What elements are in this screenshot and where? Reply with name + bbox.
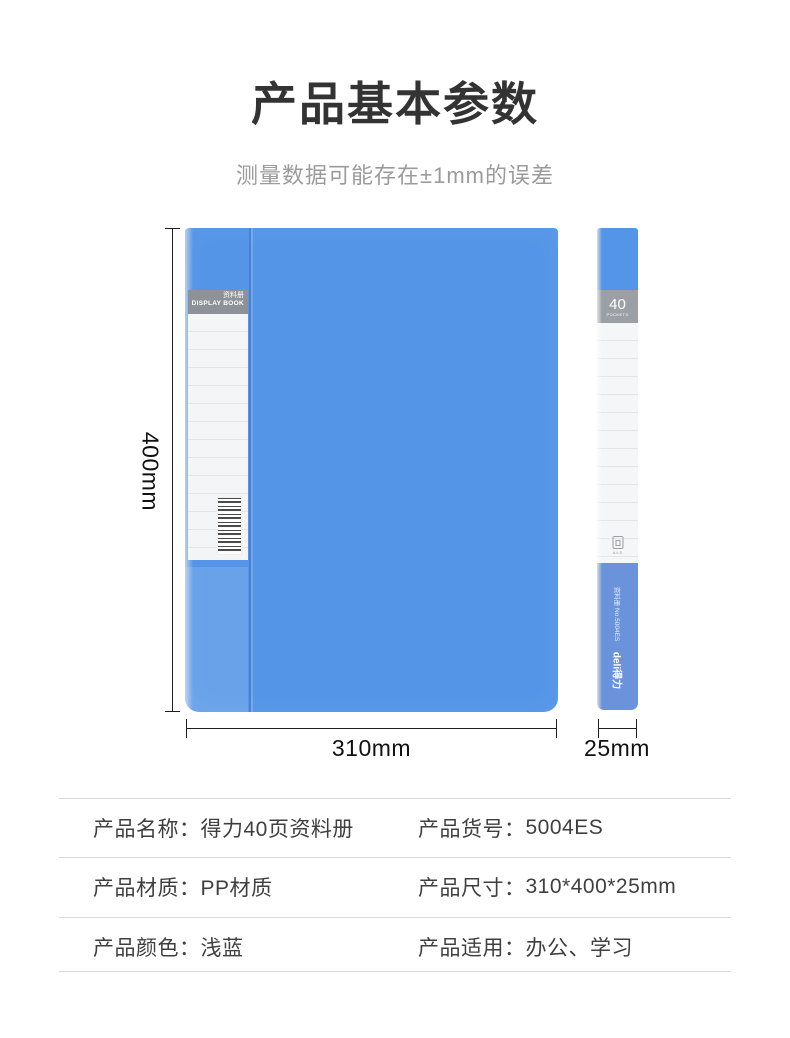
front-spine-label-band: 资料册 DISPLAY BOOK [188, 290, 248, 314]
spec-label: 产品适用： [418, 932, 526, 962]
height-dimension-tick-top [165, 228, 180, 229]
spec-label: 产品尺寸： [418, 872, 526, 902]
a4-size-icon-frame [612, 536, 623, 549]
spec-value: PP材质 [201, 872, 273, 902]
spec-product-number: 产品货号：5004ES [418, 799, 603, 857]
side-bottom-section: 资料册 No.5004ES deli得力 [597, 563, 638, 710]
spec-label: 产品颜色： [93, 932, 201, 962]
spec-label: 产品货号： [418, 813, 526, 843]
table-row: 产品颜色：浅蓝 产品适用：办公、学习 [0, 918, 790, 976]
width-dimension-line [186, 728, 557, 729]
a4-size-icon-label: A4-S [613, 550, 623, 555]
page-subtitle: 测量数据可能存在±1mm的误差 [0, 158, 790, 190]
side-model-text: 资料册 No.5004ES [613, 574, 623, 654]
spine-label-cn: 资料册 [190, 292, 244, 300]
spec-value: 办公、学习 [526, 932, 634, 962]
side-ruled-section: A4-S [597, 323, 638, 563]
spine-label-en: DISPLAY BOOK [190, 300, 244, 307]
product-side-view: 40 POCKETS A4-S 资料册 No.5004ES deli得力 [597, 228, 638, 710]
page-title: 产品基本参数 [0, 68, 790, 134]
depth-dimension-label: 25mm [567, 735, 667, 762]
spec-label: 产品材质： [93, 872, 201, 902]
spec-product-material: 产品材质：PP材质 [93, 858, 273, 916]
front-spine-label: 资料册 DISPLAY BOOK [188, 290, 248, 560]
front-spine-bottom-highlight [185, 567, 248, 712]
front-spine-crease-highlight [251, 228, 253, 712]
pocket-label: POCKETS [607, 313, 629, 317]
deli-brand-logo: deli得力 [610, 646, 625, 696]
width-dimension-label: 310mm [186, 735, 557, 762]
table-row: 产品材质：PP材质 产品尺寸：310*400*25mm [0, 858, 790, 916]
height-dimension-line [172, 228, 173, 712]
spec-label: 产品名称： [93, 813, 201, 843]
spec-product-name: 产品名称：得力40页资料册 [93, 799, 354, 857]
a4-size-icon: A4-S [612, 536, 623, 555]
spec-product-size: 产品尺寸：310*400*25mm [418, 858, 676, 916]
side-top-section [597, 228, 638, 290]
height-dimension-label: 400mm [137, 432, 164, 512]
barcode-icon [218, 498, 241, 554]
product-front-view: 资料册 DISPLAY BOOK [185, 228, 558, 712]
height-dimension-tick-bottom [165, 711, 180, 712]
product-parameter-page: 产品基本参数 测量数据可能存在±1mm的误差 资料册 DISPLAY BOOK … [0, 0, 790, 1038]
spec-value: 310*400*25mm [526, 875, 677, 899]
depth-dimension-line [598, 728, 637, 729]
side-edge-highlight [597, 228, 602, 710]
spec-value: 浅蓝 [201, 932, 244, 962]
a4-size-icon-inner [615, 540, 620, 546]
spec-product-color: 产品颜色：浅蓝 [93, 918, 244, 976]
spec-value: 得力40页资料册 [201, 813, 354, 843]
side-pocket-band: 40 POCKETS [597, 290, 638, 323]
pocket-count: 40 [609, 297, 626, 312]
table-row: 产品名称：得力40页资料册 产品货号：5004ES [0, 799, 790, 857]
spec-value: 5004ES [526, 816, 604, 840]
spec-product-usage: 产品适用：办公、学习 [418, 918, 633, 976]
